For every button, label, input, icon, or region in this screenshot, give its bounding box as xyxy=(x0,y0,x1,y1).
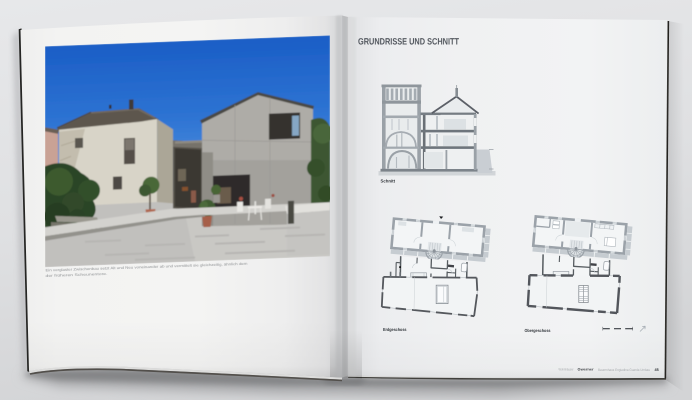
svg-text:GRUNDRISSE UND SCHNITT: GRUNDRISSE UND SCHNITT xyxy=(358,37,459,47)
svg-text:45: 45 xyxy=(655,368,659,372)
svg-text:Gwerner: Gwerner xyxy=(578,368,595,372)
svg-text:Schnitt: Schnitt xyxy=(381,179,396,184)
svg-text:Obergeschoss: Obergeschoss xyxy=(525,328,551,333)
svg-text:Bauernhaus Engiadina Guarda Um: Bauernhaus Engiadina Guarda Umbau xyxy=(598,368,650,372)
svg-text:Erdgeschoss: Erdgeschoss xyxy=(383,327,407,332)
svg-text:Wohnhäuser: Wohnhäuser xyxy=(559,368,575,372)
